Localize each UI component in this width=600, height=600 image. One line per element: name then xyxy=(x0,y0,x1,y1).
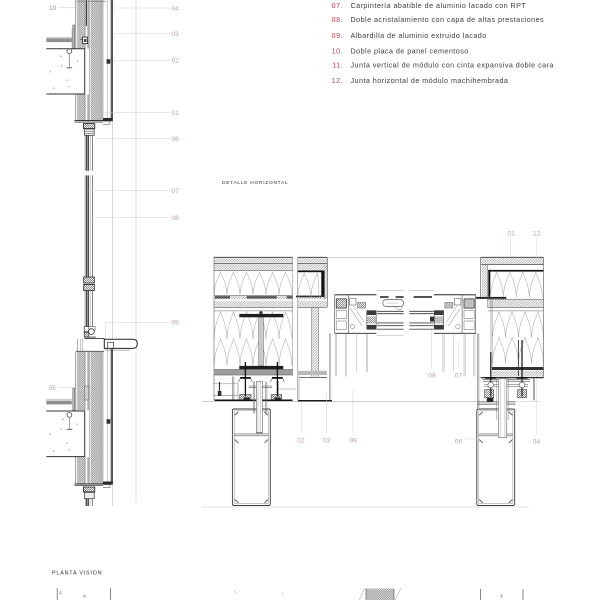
svg-text:10: 10 xyxy=(49,5,57,12)
svg-text:Albardilla de aluminio extruid: Albardilla de aluminio extruido lacado xyxy=(351,31,487,40)
svg-text:04: 04 xyxy=(172,5,180,12)
svg-text:4: 4 xyxy=(59,591,62,597)
svg-text:Doble acristalamiento con capa: Doble acristalamiento con capa de altas … xyxy=(351,15,545,24)
svg-text:08.: 08. xyxy=(332,15,343,24)
svg-text:PLANTA VISION: PLANTA VISION xyxy=(52,571,102,577)
svg-text:03: 03 xyxy=(172,31,180,38)
svg-text:Doble placa de panel cementoso: Doble placa de panel cementoso xyxy=(351,46,469,55)
svg-text:05: 05 xyxy=(49,385,57,392)
svg-text:08: 08 xyxy=(172,215,180,222)
svg-text:02: 02 xyxy=(297,437,305,444)
svg-text:11.: 11. xyxy=(332,60,343,69)
svg-text:12: 12 xyxy=(533,231,541,238)
svg-text:10.: 10. xyxy=(332,46,343,55)
svg-text:07.: 07. xyxy=(332,1,343,10)
svg-text:07: 07 xyxy=(455,372,463,379)
svg-text:09: 09 xyxy=(350,437,358,444)
svg-text:Carpintería abatible de alumin: Carpintería abatible de aluminio lacado … xyxy=(351,1,527,10)
svg-text:09.: 09. xyxy=(332,31,343,40)
svg-text:06: 06 xyxy=(455,438,463,445)
svg-text:12.: 12. xyxy=(332,76,343,85)
svg-text:03: 03 xyxy=(323,437,331,444)
svg-text:4: 4 xyxy=(83,594,86,600)
svg-text:DETALLE HORIZONTAL: DETALLE HORIZONTAL xyxy=(222,180,288,186)
svg-text:06: 06 xyxy=(172,136,180,143)
svg-text:09: 09 xyxy=(172,320,180,327)
svg-text:07: 07 xyxy=(172,188,180,195)
svg-text:Junta horizontal de módulo mac: Junta horizontal de módulo machihembrada xyxy=(351,76,509,85)
svg-text:08: 08 xyxy=(428,372,436,379)
svg-text:4: 4 xyxy=(500,594,503,600)
svg-text:Junta vertical de módulo con c: Junta vertical de módulo con cinta expan… xyxy=(351,60,554,69)
svg-text:04: 04 xyxy=(533,438,541,445)
svg-text:01: 01 xyxy=(172,110,180,117)
svg-text:01: 01 xyxy=(508,231,516,238)
svg-text:02: 02 xyxy=(172,58,180,65)
